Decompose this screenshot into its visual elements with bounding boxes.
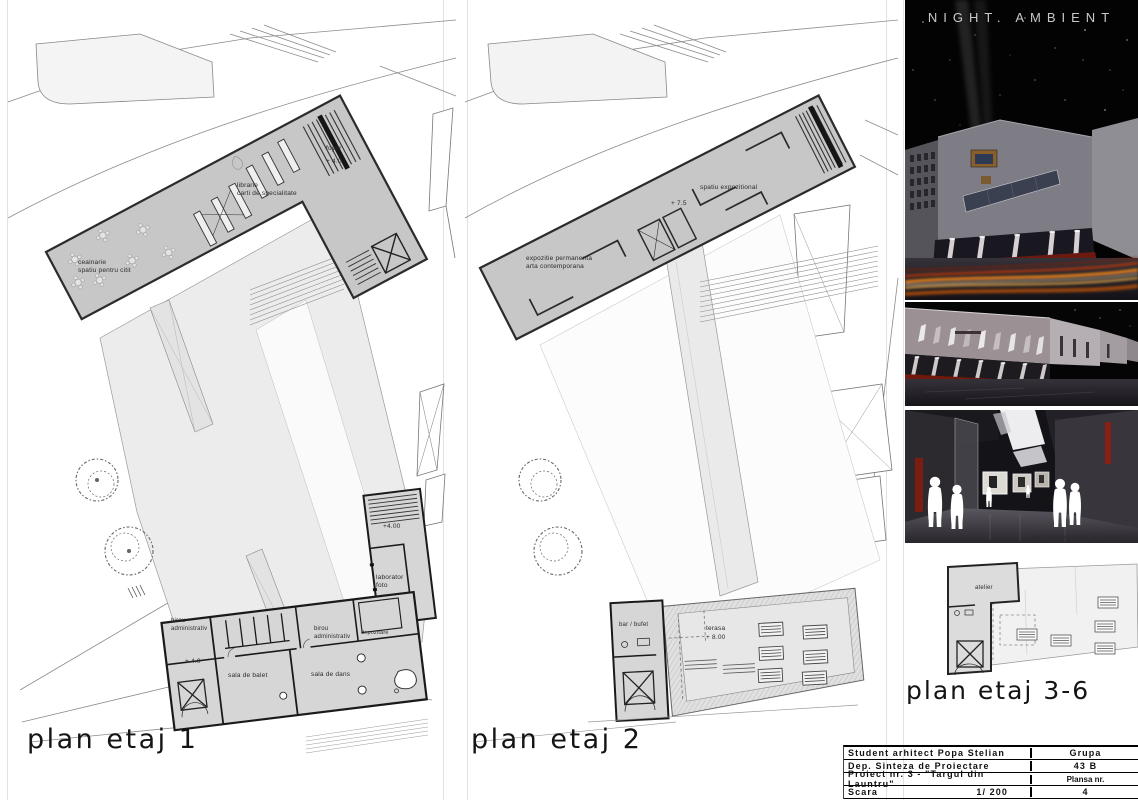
titleblock-scara-value: 1/ 200	[976, 787, 1008, 797]
plan2-bar-bufet	[610, 600, 668, 721]
plan1-crosswalk	[128, 585, 145, 598]
tree-icon	[519, 459, 582, 575]
plan2-label-bar: bar / bufet	[619, 622, 648, 628]
plan1-label-hall-level: + 4.0	[185, 658, 201, 665]
titleblock-student: Student arhitect Popa Stelian	[844, 748, 1030, 758]
render1-drawing	[905, 0, 1138, 300]
titleblock-row: Scara 1/ 200 4	[844, 786, 1138, 799]
titleblock-proiect: Proiect nr. 3 - "Targul din Launtru"	[844, 769, 1030, 789]
plan-etaj-3-6-drawing: atelier	[905, 555, 1138, 690]
plan1-label-depozitare: depozitare	[361, 630, 389, 636]
render2-drawing	[905, 302, 1138, 406]
plan2-title: plan etaj 2	[471, 724, 642, 755]
titleblock-plansa-label: Plansa nr.	[1030, 775, 1138, 784]
plan1-context-right	[417, 108, 455, 526]
plan1-context-building	[36, 34, 214, 104]
titleblock-grupa-label: Grupa	[1030, 748, 1138, 758]
plan1-label-wing-level: +4.00	[383, 523, 401, 530]
plan1-label-birou-mid: birou	[314, 626, 328, 632]
plan1-label-sala-balet: sala de balet	[228, 672, 267, 679]
plan2-label-terasa: terasa	[706, 625, 725, 632]
plan36-label-atelier: atelier	[975, 585, 993, 591]
plan1-label-laborator2: foto	[376, 582, 388, 589]
plan-etaj-1-drawing: ceainarie spatiu pentru citit librarie c…	[0, 0, 460, 800]
plan2-label-spatiu: spatiu expozitional	[700, 184, 758, 191]
plan2-label-expozitie2: arta contemporana	[526, 263, 584, 270]
titleblock-row: Student arhitect Popa Stelian Grupa	[844, 747, 1138, 760]
plan1-label-birou-mid2: administrativ	[314, 634, 350, 640]
plan2-label-level: + 7.5	[671, 200, 687, 207]
night-ambient-title: NIGHT. AMBIENT	[905, 10, 1138, 25]
titleblock-row: Proiect nr. 3 - "Targul din Launtru" Pla…	[844, 773, 1138, 786]
titleblock-grupa-value: 43 B	[1030, 761, 1138, 771]
street-ground	[905, 379, 1138, 406]
plan1-label-ceainarie2: spatiu pentru citit	[78, 267, 131, 274]
plan1-label-foyer-level: + 4.0	[326, 158, 342, 165]
plan1-label-ceainarie: ceainarie	[78, 259, 106, 266]
plan1-label-laborator: laborator	[376, 574, 404, 581]
plan2-lower	[610, 588, 865, 721]
presentation-board: ceainarie spatiu pentru citit librarie c…	[0, 0, 1138, 800]
titleblock-scara-row: Scara 1/ 200	[844, 787, 1030, 797]
plan1-label-librarie2: carti de specialitate	[237, 190, 297, 197]
title-block: Student arhitect Popa Stelian Grupa Dep.…	[843, 745, 1138, 799]
panel-divider-2b	[903, 0, 904, 800]
interior-caption: INTERIOR MUZEUL "N. TONITZA"	[1032, 536, 1131, 542]
plan2-label-terasa-level: + 8.00	[706, 634, 726, 641]
plan1-label-birou-left2: administrativ	[171, 626, 207, 632]
plan36-title: plan etaj 3-6	[906, 676, 1090, 705]
render-street-night	[905, 302, 1138, 406]
plan1-label-sala-dans: sala de dans	[311, 671, 351, 678]
plan1-label-foyer: foyer	[326, 145, 342, 152]
render-interior-museum: INTERIOR MUZEUL "N. TONITZA"	[905, 410, 1138, 543]
plan1-label-librarie: librarie	[237, 182, 258, 189]
plan1-label-birou-left: birou	[171, 618, 185, 624]
render3-drawing: INTERIOR MUZEUL "N. TONITZA"	[905, 410, 1138, 543]
plan2-context-building	[488, 34, 667, 104]
titleblock-plansa-value: 4	[1030, 787, 1138, 797]
plan2-label-expozitie: expozitie permanenta	[526, 255, 592, 262]
red-column	[915, 458, 923, 512]
plan-etaj-2-drawing: spatiu expozitional + 7.5 expozitie perm…	[460, 0, 900, 800]
titleblock-scara-label: Scara	[848, 787, 878, 797]
facade-signage	[955, 331, 981, 334]
plan1-title: plan etaj 1	[27, 724, 198, 755]
render-night-exterior	[905, 0, 1138, 300]
